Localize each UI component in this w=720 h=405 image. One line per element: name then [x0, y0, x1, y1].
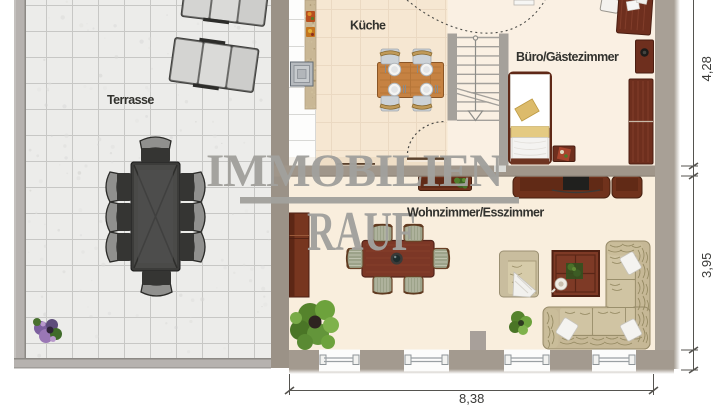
svg-text:Wohnzimmer/Esszimmer: Wohnzimmer/Esszimmer — [407, 206, 544, 220]
svg-text:Büro/Gästezimmer: Büro/Gästezimmer — [516, 50, 619, 64]
svg-text:Küche: Küche — [350, 19, 386, 33]
svg-text:3,95: 3,95 — [699, 253, 714, 278]
svg-text:8,38: 8,38 — [459, 391, 484, 405]
svg-text:Terrasse: Terrasse — [107, 93, 154, 107]
svg-text:IMMOBILIEN: IMMOBILIEN — [206, 145, 503, 197]
svg-text:RAUF: RAUF — [307, 201, 416, 262]
svg-text:4,28: 4,28 — [699, 56, 714, 81]
